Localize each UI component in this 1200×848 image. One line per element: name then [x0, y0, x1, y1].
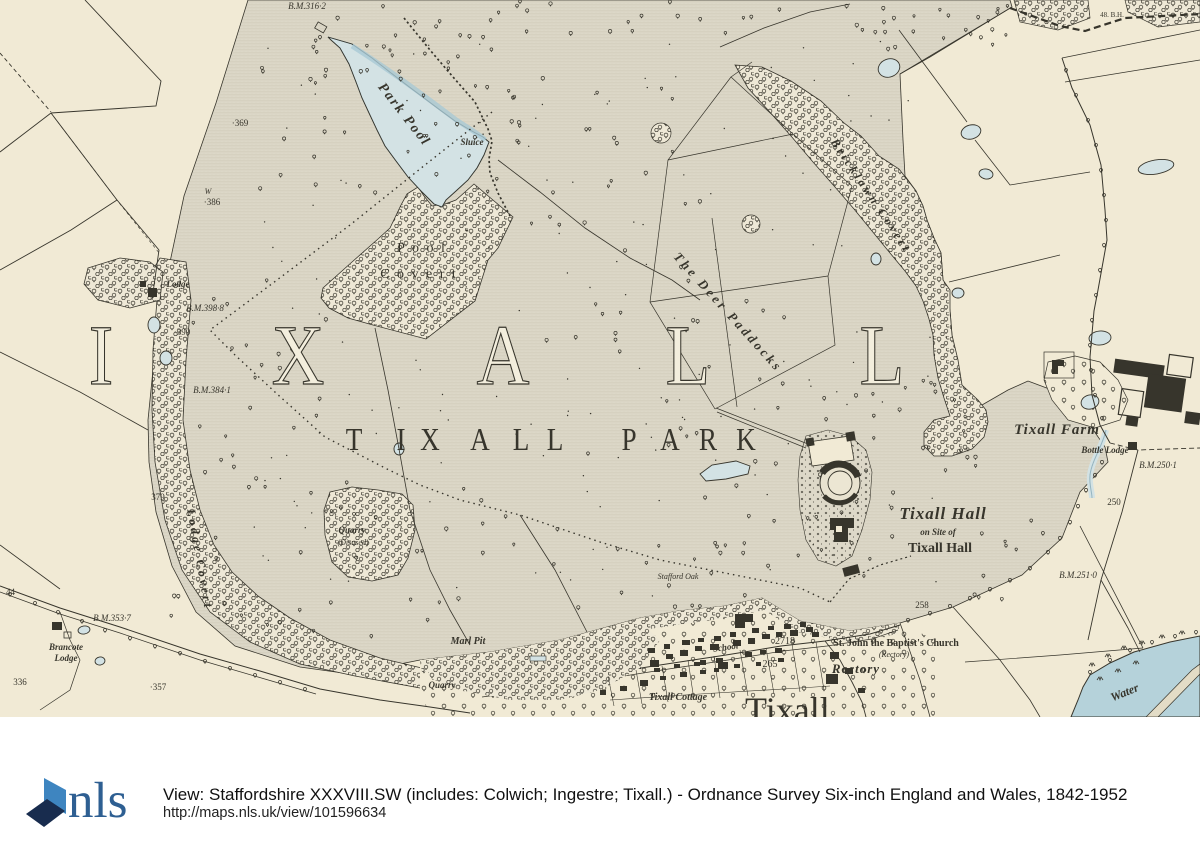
svg-text:B.M.398·8: B.M.398·8 [186, 303, 224, 313]
svg-text:on Site of: on Site of [920, 527, 957, 537]
svg-text:B.M.384·1: B.M.384·1 [193, 385, 231, 395]
svg-text:St. John the Baptist's Church: St. John the Baptist's Church [833, 638, 959, 649]
svg-text:Lodge: Lodge [166, 279, 190, 289]
svg-text:B.M.251·0: B.M.251·0 [1059, 570, 1097, 580]
svg-text:Sluice: Sluice [460, 137, 483, 147]
svg-text:Lodge: Lodge [54, 653, 78, 663]
svg-text:X: X [272, 309, 325, 404]
svg-text:L: L [666, 309, 711, 404]
svg-text:Tixall Hall: Tixall Hall [899, 504, 986, 523]
svg-text:K: K [736, 423, 756, 457]
svg-text:·386: ·386 [204, 197, 221, 207]
svg-text:P: P [621, 423, 636, 457]
svg-text:Bottle Lodge: Bottle Lodge [1080, 445, 1128, 455]
svg-text:C o v e r t: C o v e r t [380, 267, 458, 282]
svg-text:Tixall Hall: Tixall Hall [908, 541, 972, 556]
svg-text:·390: ·390 [174, 327, 191, 337]
svg-text:258: 258 [915, 600, 929, 610]
svg-text:336: 336 [13, 677, 27, 687]
svg-text:L: L [513, 423, 530, 457]
svg-text:A: A [477, 309, 530, 404]
svg-text:A: A [660, 423, 680, 457]
svg-text:Brancote: Brancote [48, 642, 83, 652]
svg-text:·357: ·357 [150, 682, 167, 692]
svg-text:P o o l: P o o l [397, 241, 447, 256]
svg-text:Quarry: Quarry [428, 680, 456, 690]
svg-text:B.M.250·1: B.M.250·1 [1139, 460, 1177, 470]
svg-text:Marl Pit: Marl Pit [450, 636, 487, 647]
svg-text:B.M.316·2: B.M.316·2 [288, 1, 326, 11]
svg-text:(Disused): (Disused) [337, 538, 368, 547]
svg-text:Tixall Cottage: Tixall Cottage [649, 692, 708, 703]
svg-text:X: X [420, 423, 440, 457]
svg-text:R: R [699, 423, 717, 457]
svg-text:250: 250 [1107, 497, 1121, 507]
svg-text:L: L [860, 309, 905, 404]
svg-text:379: 379 [151, 492, 165, 502]
svg-text:B.M.353·7: B.M.353·7 [93, 613, 131, 623]
svg-text:265: 265 [763, 659, 778, 670]
svg-text:2718: 2718 [775, 636, 795, 647]
svg-text:·369: ·369 [232, 118, 249, 128]
svg-text:L: L [547, 423, 564, 457]
svg-text:T: T [346, 423, 363, 457]
svg-text:Quarry: Quarry [338, 525, 366, 535]
svg-text:Tixall: Tixall [745, 690, 830, 717]
svg-text:nls: nls [68, 773, 128, 829]
svg-text:48. B.H.: 48. B.H. [1100, 11, 1124, 19]
svg-text:Tixall Farm: Tixall Farm [1014, 422, 1100, 438]
svg-text:(Rectory): (Rectory) [879, 650, 910, 659]
svg-text:44: 44 [6, 587, 16, 597]
svg-text:A: A [470, 423, 490, 457]
svg-text:I: I [396, 423, 405, 457]
svg-text:Stafford Oak: Stafford Oak [658, 572, 699, 581]
svg-text:Rectory: Rectory [831, 661, 880, 676]
svg-text:I: I [89, 309, 113, 404]
